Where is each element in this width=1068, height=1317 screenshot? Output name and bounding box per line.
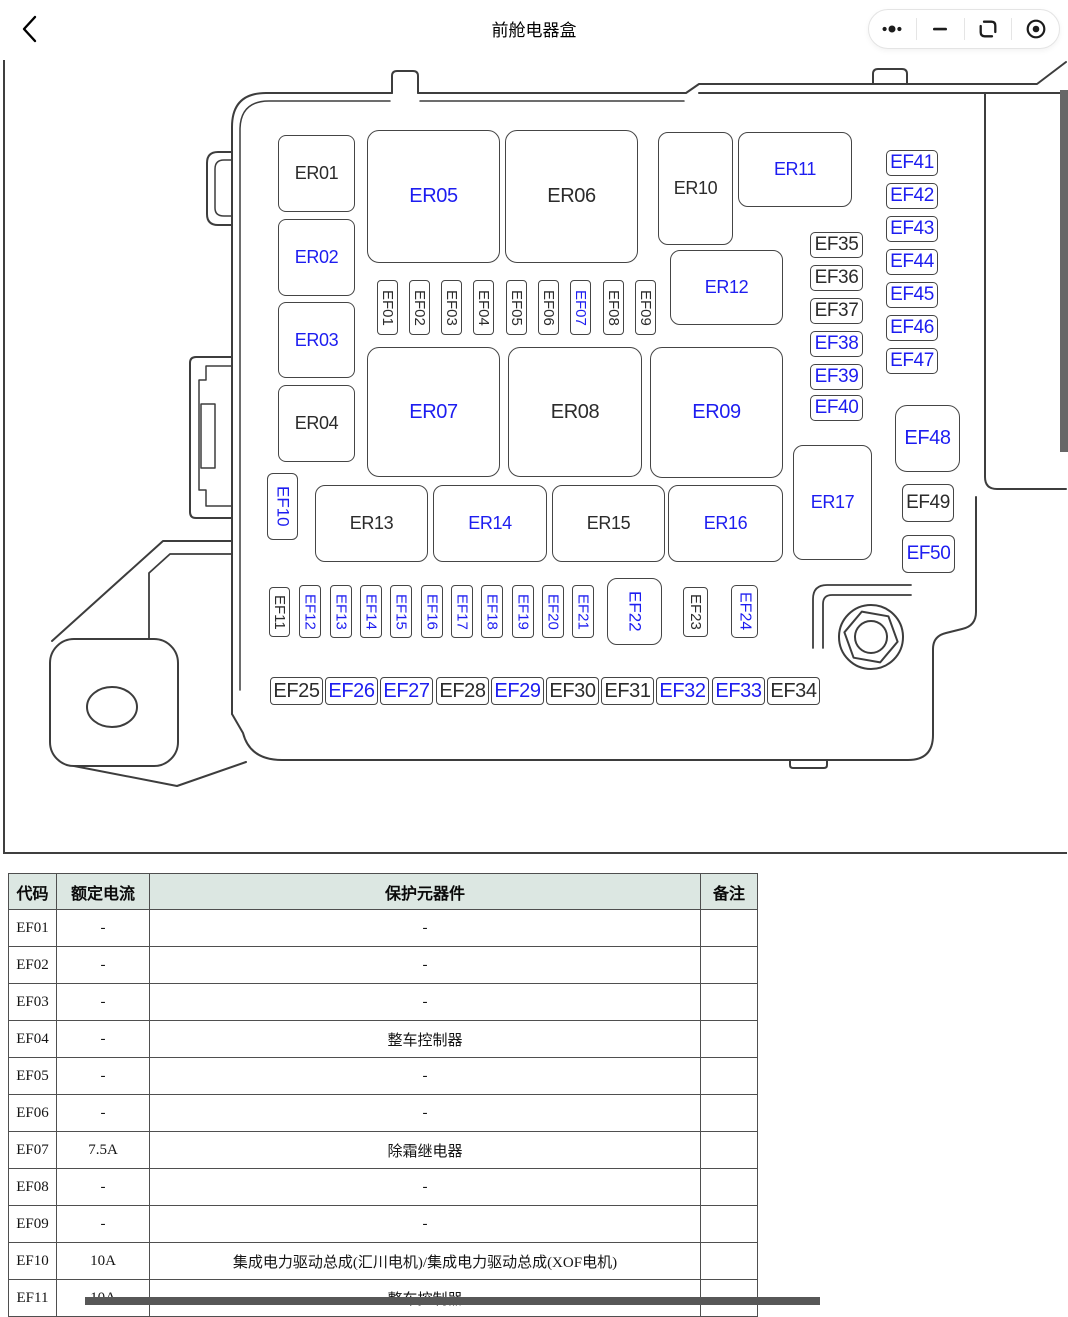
table-cell: - <box>150 984 701 1021</box>
table-cell <box>701 1243 758 1280</box>
table-cell <box>701 1058 758 1095</box>
horizontal-scrollbar[interactable] <box>85 1297 820 1305</box>
more-button[interactable] <box>869 10 916 48</box>
minimize-button[interactable] <box>917 10 964 48</box>
restore-button[interactable] <box>965 10 1012 48</box>
table-cell <box>701 1021 758 1058</box>
col-header-protected-component: 保护元器件 <box>150 874 701 910</box>
table-cell <box>701 947 758 984</box>
table-cell: 集成电力驱动总成(汇川电机)/集成电力驱动总成(XOF电机) <box>150 1243 701 1280</box>
capsule-menu <box>868 9 1060 49</box>
table-cell: 10A <box>57 1243 150 1280</box>
table-cell: 整车控制器 <box>150 1021 701 1058</box>
table-cell <box>701 1169 758 1206</box>
table-cell: EF10 <box>9 1243 57 1280</box>
table-cell: - <box>57 1206 150 1243</box>
table-row-ef10: EF1010A集成电力驱动总成(汇川电机)/集成电力驱动总成(XOF电机) <box>9 1243 758 1280</box>
table-cell: - <box>150 947 701 984</box>
table-cell: - <box>57 1095 150 1132</box>
table-row-ef05: EF05-- <box>9 1058 758 1095</box>
table-cell: EF02 <box>9 947 57 984</box>
table-cell: - <box>150 1058 701 1095</box>
table-cell: - <box>57 1021 150 1058</box>
table-cell: - <box>57 984 150 1021</box>
table-cell: EF07 <box>9 1132 57 1169</box>
table-row-ef06: EF06-- <box>9 1095 758 1132</box>
table-cell <box>701 1132 758 1169</box>
table-cell <box>701 910 758 947</box>
table-row-ef03: EF03-- <box>9 984 758 1021</box>
fuse-table: 代码 额定电流 保护元器件 备注 EF01--EF02--EF03--EF04-… <box>8 873 758 1317</box>
table-cell: - <box>150 1206 701 1243</box>
table-cell <box>701 1095 758 1132</box>
table-cell <box>701 1206 758 1243</box>
table-cell: - <box>57 910 150 947</box>
table-cell: 除霜继电器 <box>150 1132 701 1169</box>
back-button[interactable] <box>14 13 46 45</box>
diagram-pane[interactable] <box>3 60 1067 854</box>
chevron-left-icon <box>20 14 40 44</box>
table-row-ef04: EF04-整车控制器 <box>9 1021 758 1058</box>
table-cell: EF08 <box>9 1169 57 1206</box>
table-cell: EF01 <box>9 910 57 947</box>
col-header-rated-current: 额定电流 <box>57 874 150 910</box>
table-cell: - <box>57 1169 150 1206</box>
minimize-icon <box>928 17 952 41</box>
col-header-code: 代码 <box>9 874 57 910</box>
restore-window-icon <box>976 17 1000 41</box>
table-cell: 7.5A <box>57 1132 150 1169</box>
more-dots-icon <box>880 17 904 41</box>
table-cell: - <box>150 1095 701 1132</box>
circle-dot-icon <box>1024 17 1048 41</box>
table-cell <box>701 984 758 1021</box>
table-cell: EF09 <box>9 1206 57 1243</box>
table-row-ef09: EF09-- <box>9 1206 758 1243</box>
table-cell: - <box>57 947 150 984</box>
table-header-row: 代码 额定电流 保护元器件 备注 <box>9 874 758 910</box>
table-row-ef07: EF077.5A除霜继电器 <box>9 1132 758 1169</box>
fuse-table-body: EF01--EF02--EF03--EF04-整车控制器EF05--EF06--… <box>9 910 758 1317</box>
col-header-remark: 备注 <box>701 874 758 910</box>
table-cell: EF06 <box>9 1095 57 1132</box>
vertical-scrollbar[interactable] <box>1060 90 1068 452</box>
top-bar: 前舱电器盒 <box>0 0 1068 58</box>
table-row-ef08: EF08-- <box>9 1169 758 1206</box>
close-button[interactable] <box>1012 10 1059 48</box>
table-cell: EF11 <box>9 1280 57 1317</box>
table-cell: - <box>57 1058 150 1095</box>
table-cell: EF03 <box>9 984 57 1021</box>
table-cell: EF05 <box>9 1058 57 1095</box>
table-cell: - <box>150 1169 701 1206</box>
table-row-ef01: EF01-- <box>9 910 758 947</box>
table-cell: - <box>150 910 701 947</box>
table-row-ef02: EF02-- <box>9 947 758 984</box>
table-cell: EF04 <box>9 1021 57 1058</box>
